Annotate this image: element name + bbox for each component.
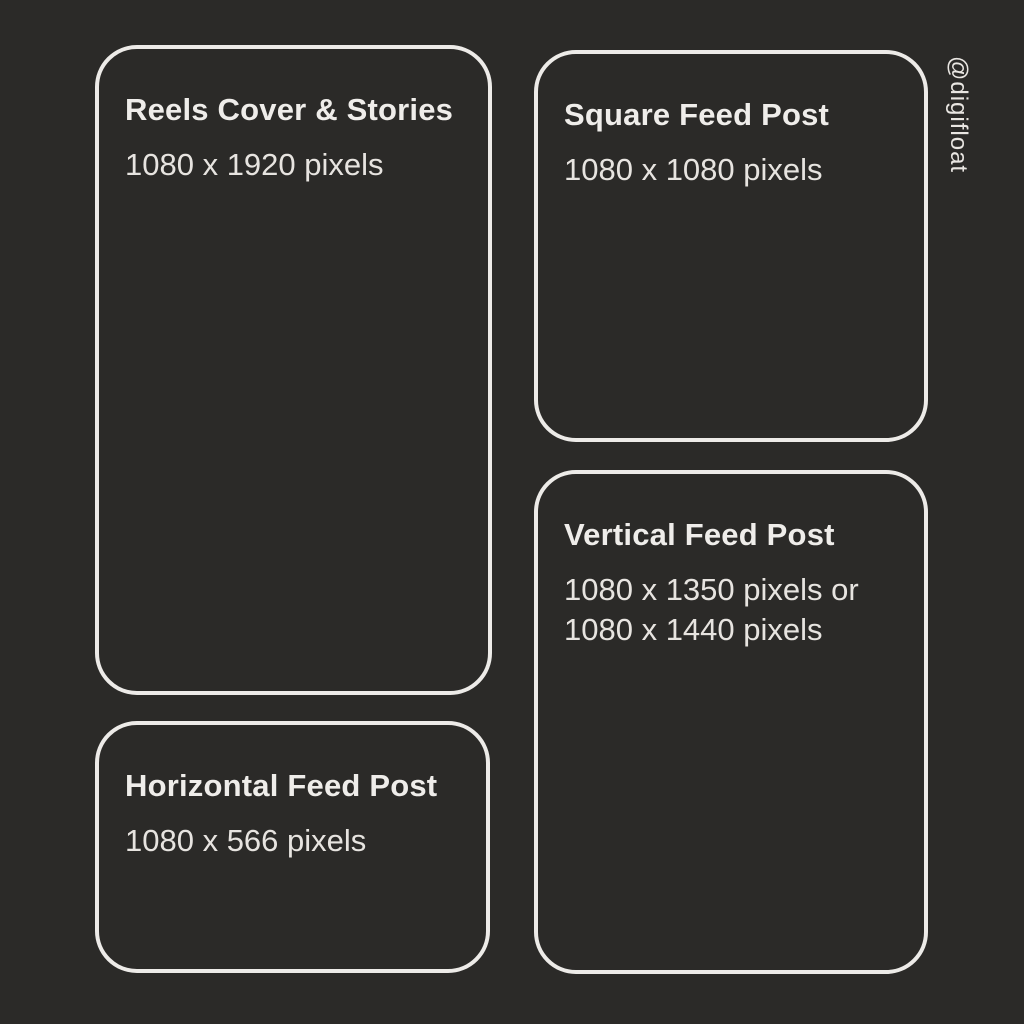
card-square-feed-post: Square Feed Post 1080 x 1080 pixels xyxy=(534,50,928,442)
card-horizontal-feed-post: Horizontal Feed Post 1080 x 566 pixels xyxy=(95,721,490,973)
card-size: 1080 x 566 pixels xyxy=(125,821,460,861)
card-title: Horizontal Feed Post xyxy=(125,769,460,803)
watermark-handle: @digifloat xyxy=(944,56,972,173)
card-size-line-1: 1080 x 1350 pixels or xyxy=(564,570,898,610)
card-size: 1080 x 1350 pixels or 1080 x 1440 pixels xyxy=(564,570,898,651)
card-title: Vertical Feed Post xyxy=(564,518,898,552)
instagram-sizes-infographic: Reels Cover & Stories 1080 x 1920 pixels… xyxy=(0,0,1024,1024)
card-vertical-feed-post: Vertical Feed Post 1080 x 1350 pixels or… xyxy=(534,470,928,974)
card-size-line-2: 1080 x 1440 pixels xyxy=(564,610,898,650)
card-reels-cover-stories: Reels Cover & Stories 1080 x 1920 pixels xyxy=(95,45,492,695)
card-size: 1080 x 1920 pixels xyxy=(125,145,462,185)
card-size: 1080 x 1080 pixels xyxy=(564,150,898,190)
card-title: Square Feed Post xyxy=(564,98,898,132)
card-title: Reels Cover & Stories xyxy=(125,93,462,127)
